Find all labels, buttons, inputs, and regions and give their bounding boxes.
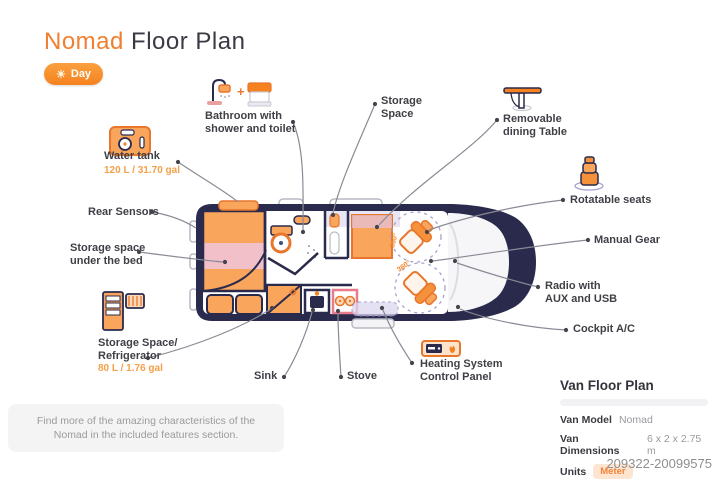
refrigerator-capacity: 80 L / 1.76 gal [98,363,163,374]
info-panel-divider [560,399,708,406]
dining-table-icon [504,88,541,111]
label-dining-table: Removable dining Table [503,113,583,139]
water-tank-capacity: 120 L / 31.70 gal [104,165,180,176]
sink-unit [305,290,329,313]
callout-line-water-tank [178,162,238,202]
label-heating: Heating System Control Panel [420,358,515,384]
label-bathroom: Bathroom with shower and toilet [205,110,305,136]
roof-tank-bar [219,201,258,210]
info-row-model: Van Model Nomad [560,414,712,426]
label-manual-gear: Manual Gear [594,234,660,247]
label-rear-sensors: Rear Sensors [88,206,178,219]
info-label: Van Dimensions [560,433,640,457]
label-sink: Sink [254,370,277,383]
callout-line-storage-space [333,104,375,213]
label-storage-space: Storage Space [381,95,436,121]
bed-cushion [207,295,233,314]
label-rotatable-seats: Rotatable seats [570,194,651,207]
van-model-name: Nomad [44,28,124,55]
label-radio: Radio with AUX and USB [545,280,625,306]
shower-head [294,216,310,224]
footer-note-text: Find more of the amazing characteristics… [27,414,265,442]
rear-door-handles [190,221,197,310]
day-mode-toggle[interactable]: ☀ Day [44,63,103,85]
refrigerator-icon [103,292,144,330]
info-row-dimensions: Van Dimensions 6 x 2 x 2.75 m [560,433,712,457]
heating-panel-icon [422,341,460,356]
label-stove: Stove [347,370,377,383]
storage-cabinet [352,215,392,258]
callout-line-stove [338,313,341,377]
info-panel-heading: Van Floor Plan [560,378,712,393]
shower-icon [207,80,230,105]
bed-cushion [236,295,262,314]
page-title: Nomad Floor Plan [44,28,245,56]
label-refrigerator: Storage Space/ Refrigerator [98,337,193,363]
info-label: Van Model [560,414,612,426]
info-label: Units [560,466,586,478]
footer-note-box: Find more of the amazing characteristics… [8,404,284,452]
floor-plan-page: 360° 360° + [0,0,720,480]
toilet-icon [248,83,271,106]
label-under-bed-storage: Storage space under the bed [70,242,160,268]
plus-icon: + [237,84,245,99]
rotatable-seat-icon [575,157,603,190]
callout-line-sink [284,312,312,377]
label-water-tank: Water tank [104,150,184,163]
info-value: Nomad [619,414,653,426]
info-value: 6 x 2 x 2.75 m [647,433,712,457]
sun-icon: ☀ [56,68,66,81]
label-cockpit-ac: Cockpit A/C [573,323,635,336]
heating-panel-zone [352,302,398,316]
watermark-id: 209322-20099575 [606,456,712,471]
day-mode-label: Day [71,68,91,80]
